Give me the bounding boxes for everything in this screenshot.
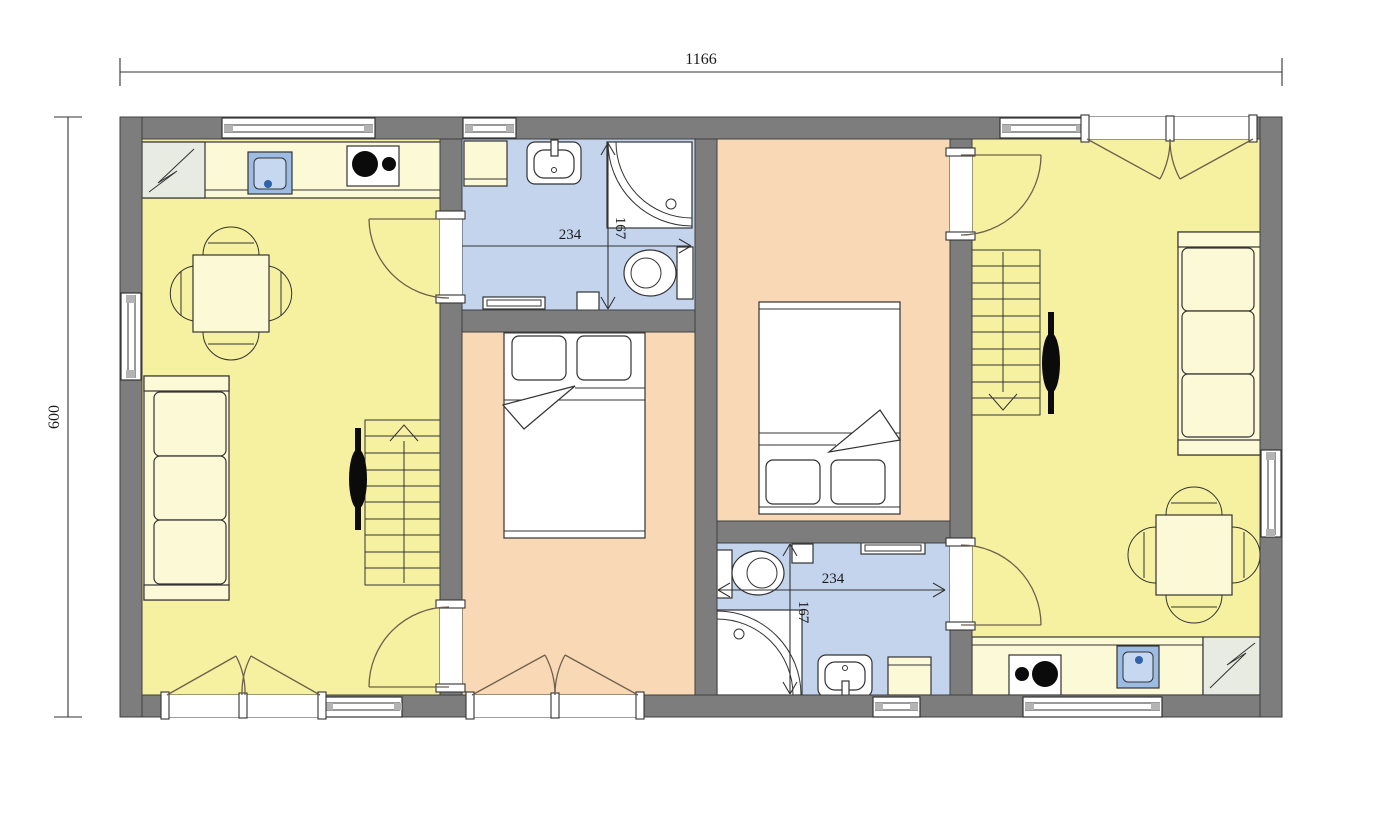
- window-bottom-right: [1023, 697, 1162, 717]
- pillow: [577, 336, 631, 380]
- sofa-cushion: [1182, 311, 1254, 374]
- sofa-cushion: [154, 456, 226, 520]
- sofa-left: [144, 376, 229, 600]
- bed-middle: [503, 326, 645, 538]
- radiator-icon: [483, 297, 545, 309]
- sofa-cushion: [154, 392, 226, 456]
- pillow: [512, 336, 566, 380]
- window-top-bathroom: [463, 118, 516, 138]
- sofa-arm: [144, 585, 229, 600]
- washbasin-icon: [527, 140, 581, 184]
- exterior-wall-right: [1260, 117, 1282, 717]
- utility-box: [577, 292, 599, 311]
- burner-large: [1032, 661, 1058, 687]
- overall-width-dimension: 1166: [120, 51, 1282, 86]
- overall-height-dimension: 600: [46, 117, 82, 717]
- sofa-arm: [144, 376, 229, 391]
- pillow: [831, 460, 885, 504]
- burner-small: [382, 157, 396, 171]
- toilet-bowl: [624, 250, 676, 296]
- sofa-arm: [1178, 440, 1263, 455]
- interior-wall-d: [462, 310, 695, 332]
- floor-plan-canvas: 1166 600: [0, 0, 1386, 817]
- bathroom-cabinet: [888, 657, 931, 695]
- bathroom-bottom-height-label: 167: [795, 601, 811, 624]
- corner-shower-icon: [717, 610, 802, 695]
- window-right-wall: [1261, 450, 1281, 537]
- sofa-cushion: [1182, 374, 1254, 437]
- interior-wall-b: [695, 139, 717, 695]
- sofa-right: [1178, 232, 1263, 455]
- bathroom-top-width-label: 234: [559, 227, 582, 243]
- sofa-cushion: [1182, 248, 1254, 311]
- toilet-tank: [677, 247, 693, 299]
- bed-right: [759, 302, 900, 514]
- toilet-icon: [717, 550, 784, 598]
- table-top: [1156, 515, 1232, 595]
- sofa-cushion: [154, 520, 226, 584]
- kitchen-counter: [972, 637, 1203, 695]
- radiator-icon: [861, 542, 925, 554]
- pillow: [766, 460, 820, 504]
- window-bottom-bathroom: [873, 697, 920, 717]
- window-top-left: [222, 118, 375, 138]
- window-top-right: [1000, 118, 1087, 138]
- window-left-wall: [121, 293, 141, 380]
- bathroom-top-height-label: 167: [612, 217, 628, 240]
- kitchen-left: [142, 142, 443, 198]
- toilet-bowl: [732, 551, 784, 595]
- corner-shower-icon: [607, 142, 692, 228]
- interior-wall-e: [717, 521, 950, 543]
- toilet-icon: [624, 247, 693, 299]
- door-mullion: [1166, 116, 1174, 141]
- burner-large: [352, 151, 378, 177]
- floor-plan-drawing: 1166 600: [0, 0, 1386, 817]
- kitchen-right: [972, 637, 1260, 695]
- exterior-wall-left: [120, 117, 142, 717]
- bathroom-bottom-width-label: 234: [822, 571, 845, 587]
- window-bottom-left: [323, 697, 402, 717]
- washbasin-icon: [818, 655, 872, 697]
- sofa-arm: [1178, 232, 1263, 247]
- overall-width-label: 1166: [685, 51, 716, 68]
- door-mullion: [551, 693, 559, 718]
- door-mullion: [239, 693, 247, 718]
- table-top: [193, 255, 269, 332]
- burner-small: [1015, 667, 1029, 681]
- overall-height-label: 600: [46, 405, 63, 429]
